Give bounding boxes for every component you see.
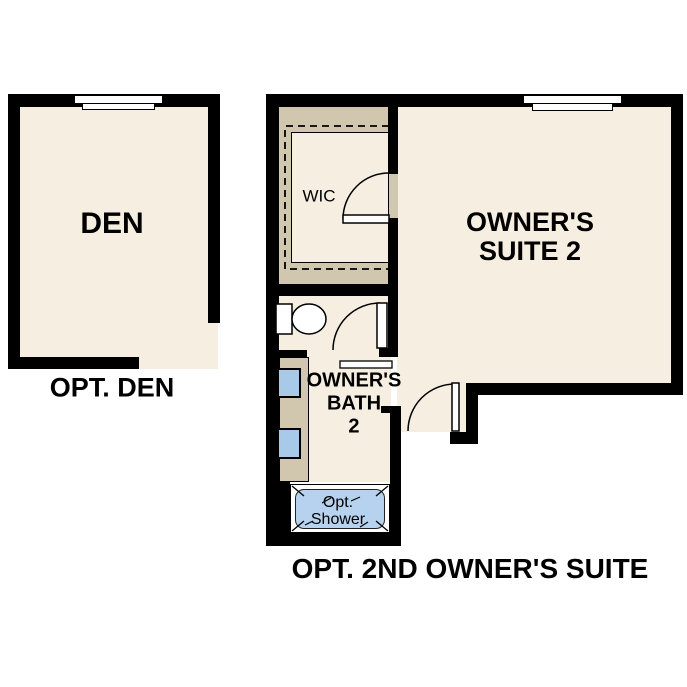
wic-label: WIC — [302, 188, 335, 205]
den-door-opening-right — [212, 323, 218, 369]
suite-caption: OPT. 2ND OWNER'S SUITE — [292, 555, 649, 583]
shower-label: Opt. Shower — [311, 494, 365, 528]
suite-wall-bottom — [466, 383, 683, 395]
den-door-opening-bottom — [139, 357, 218, 369]
suite-wall-left — [266, 94, 279, 546]
vanity-sink-2 — [277, 428, 301, 459]
wic-wall-bottom — [266, 284, 398, 296]
floorplan-canvas: DEN OPT. DEN — [0, 0, 687, 687]
shower-label-line1: Opt. — [311, 494, 365, 511]
bath-room-label: OWNER'S BATH 2 — [307, 370, 402, 439]
den-wall-left — [8, 94, 20, 369]
suite-window-sill — [532, 103, 613, 111]
den-window-sill — [82, 103, 155, 110]
suite-entry-south-wall — [450, 432, 478, 444]
bath-room-label-line2: BATH — [307, 393, 402, 416]
den-wall-bottom — [8, 357, 139, 369]
vanity-sink-1 — [277, 368, 301, 398]
bath-room-label-line3: 2 — [307, 416, 402, 439]
suite-room-label: OWNER'S SUITE 2 — [466, 208, 594, 266]
wic-wall-right-lower — [388, 218, 398, 284]
den-wall-right — [208, 94, 220, 323]
suite-room-label-line1: OWNER'S — [466, 208, 594, 237]
suite-entry-alcove-floor — [397, 384, 466, 432]
den-room-label: DEN — [80, 209, 143, 239]
bath-wall-bottom — [266, 533, 401, 546]
shower-label-line2: Shower — [311, 511, 365, 528]
suite-room-label-line2: SUITE 2 — [466, 237, 594, 266]
suite-wall-right — [671, 94, 683, 395]
wic-wall-right-upper — [388, 107, 398, 174]
bath-door-hinge-block — [379, 348, 390, 357]
den-caption: OPT. DEN — [50, 375, 175, 402]
bath-room-label-line1: OWNER'S — [307, 370, 402, 393]
